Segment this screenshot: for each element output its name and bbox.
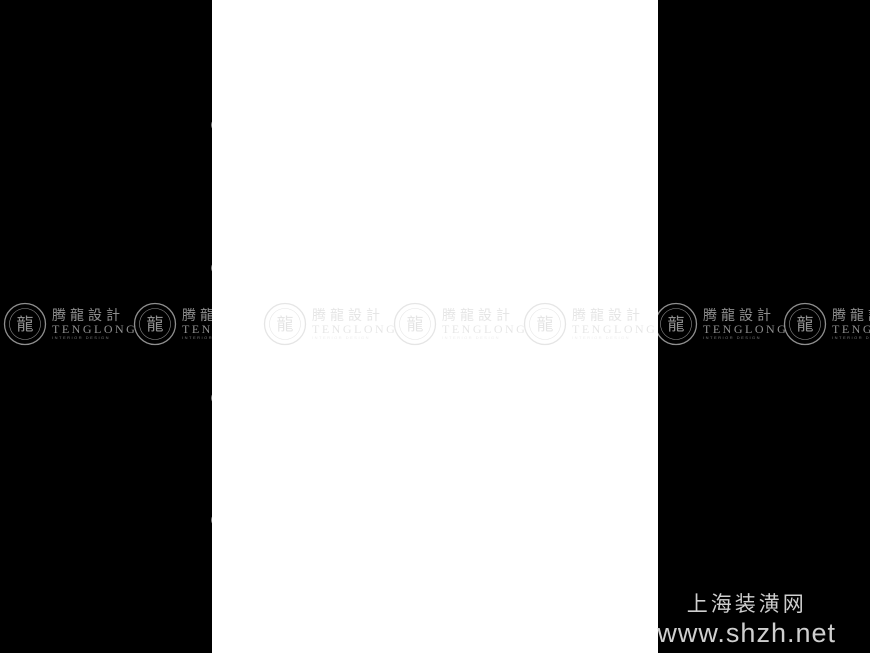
svg-text:-3.050: -3.050 [299, 209, 304, 221]
svg-text:M1021: M1021 [612, 66, 616, 76]
screenshot-canvas: 7403300258024603380960408044204780132805… [0, 0, 870, 653]
svg-text:C1518: C1518 [420, 569, 424, 578]
annotation-tags: C0915M0921C1518M0821C0924C1515M1021C0615… [244, 58, 617, 587]
svg-text:H: H [489, 91, 496, 96]
svg-text:C0615: C0615 [489, 569, 493, 578]
svg-text:C: C [258, 573, 265, 578]
svg-text:4: 4 [646, 235, 653, 239]
svg-text:-2.800: -2.800 [381, 314, 386, 326]
svg-text:-2.800: -2.800 [504, 456, 509, 468]
svg-text:2580: 2580 [388, 97, 396, 101]
svg-text:3380: 3380 [536, 97, 544, 101]
columns-layer [245, 123, 586, 537]
svg-text:740: 740 [254, 97, 260, 101]
svg-text:C0615: C0615 [371, 569, 375, 578]
svg-text:14880: 14880 [231, 322, 235, 332]
svg-text:C0924: C0924 [325, 569, 329, 578]
svg-text:-2.800: -2.800 [299, 366, 304, 378]
grid-bubbles: CDEHKCDEG159101346810 [212, 85, 658, 581]
svg-text:C1515: C1515 [605, 66, 609, 75]
svg-text:C1518: C1518 [306, 569, 310, 578]
svg-text:E: E [422, 91, 429, 96]
svg-text:2460: 2460 [456, 97, 464, 101]
svg-text:5: 5 [213, 268, 220, 272]
svg-text:C0615: C0615 [244, 569, 248, 578]
svg-text:-3.050: -3.050 [451, 179, 456, 191]
svg-text:M0821: M0821 [536, 66, 540, 76]
svg-text:M0921: M0921 [385, 569, 389, 579]
svg-text:C0924: C0924 [598, 66, 602, 75]
svg-text:8: 8 [643, 392, 650, 396]
svg-text:2080: 2080 [628, 148, 632, 156]
walls-layer [247, 126, 610, 540]
svg-text:M0921: M0921 [527, 569, 531, 579]
svg-text:M0821: M0821 [313, 569, 317, 579]
svg-text:-2.800: -2.800 [376, 242, 381, 254]
svg-text:-2.800: -2.800 [304, 299, 309, 311]
svg-text:C1518: C1518 [534, 569, 538, 578]
svg-text:C1518: C1518 [529, 66, 533, 75]
svg-text:C0915: C0915 [378, 569, 382, 578]
svg-text:M0821: M0821 [338, 66, 342, 76]
svg-text:M0921: M0921 [522, 66, 526, 76]
svg-text:C1515: C1515 [332, 569, 336, 578]
staircase [357, 157, 414, 233]
svg-text:2090: 2090 [628, 259, 632, 267]
svg-text:M1021: M1021 [447, 66, 451, 76]
svg-text:M0821: M0821 [541, 569, 545, 579]
svg-text:1: 1 [213, 125, 220, 129]
svg-text:5230: 5230 [628, 459, 632, 467]
site-credit-url: www.shzh.net [657, 618, 836, 649]
svg-text:C0915: C0915 [461, 66, 465, 75]
svg-text:M0921: M0921 [284, 66, 288, 76]
site-credit: 上海装潢网 www.shzh.net [657, 588, 836, 649]
svg-text:C1518: C1518 [331, 66, 335, 75]
direction-arrows [375, 159, 462, 295]
windows-layer [244, 123, 616, 543]
svg-text:1980: 1980 [628, 204, 632, 212]
svg-text:3: 3 [646, 181, 653, 185]
svg-text:4760: 4760 [223, 329, 227, 337]
svg-text:C0615: C0615 [454, 66, 458, 75]
svg-text:C0924: C0924 [447, 569, 451, 578]
svg-text:14880: 14880 [635, 324, 639, 334]
svg-text:C0924: C0924 [345, 66, 349, 75]
floor-plan-drawing: 7403300258024603380960408044204780132805… [0, 0, 870, 653]
svg-text:5280: 5280 [223, 192, 227, 200]
svg-text:13280: 13280 [425, 555, 435, 559]
svg-text:C0915: C0915 [277, 66, 281, 75]
site-credit-name: 上海装潢网 [657, 588, 836, 618]
svg-text:-2.800: -2.800 [536, 229, 541, 241]
svg-text:1: 1 [645, 124, 652, 128]
svg-text:10: 10 [213, 519, 220, 527]
svg-text:-2.800: -2.800 [444, 334, 449, 346]
svg-text:4840: 4840 [223, 460, 227, 468]
svg-text:10: 10 [645, 533, 652, 541]
svg-text:4080: 4080 [301, 548, 309, 552]
svg-text:G: G [476, 574, 483, 579]
svg-text:4420: 4420 [416, 548, 424, 552]
svg-text:960: 960 [596, 97, 602, 101]
svg-text:4780: 4780 [541, 548, 549, 552]
svg-text:K: K [581, 92, 588, 97]
svg-text:M0921: M0921 [299, 569, 303, 579]
svg-text:9: 9 [213, 398, 220, 402]
svg-text:D: D [352, 91, 359, 96]
svg-text:M0821: M0821 [427, 569, 431, 579]
room-labels: -3.050-3.050-2.800-2.800-2.800-2.800-2.8… [299, 179, 541, 471]
svg-text:C1515: C1515 [399, 66, 403, 75]
svg-text:M1021: M1021 [461, 569, 465, 579]
svg-text:3300: 3300 [308, 97, 316, 101]
svg-text:D: D [356, 574, 363, 579]
svg-text:C: C [262, 91, 269, 96]
svg-text:-2.800: -2.800 [411, 459, 416, 471]
svg-text:3660: 3660 [628, 338, 632, 346]
svg-text:6: 6 [644, 292, 651, 296]
svg-text:C1515: C1515 [454, 569, 458, 578]
svg-text:M1021: M1021 [339, 569, 343, 579]
svg-text:C0915: C0915 [251, 569, 255, 578]
counter [272, 339, 332, 345]
svg-text:E: E [403, 573, 410, 578]
svg-text:C0915: C0915 [496, 569, 500, 578]
